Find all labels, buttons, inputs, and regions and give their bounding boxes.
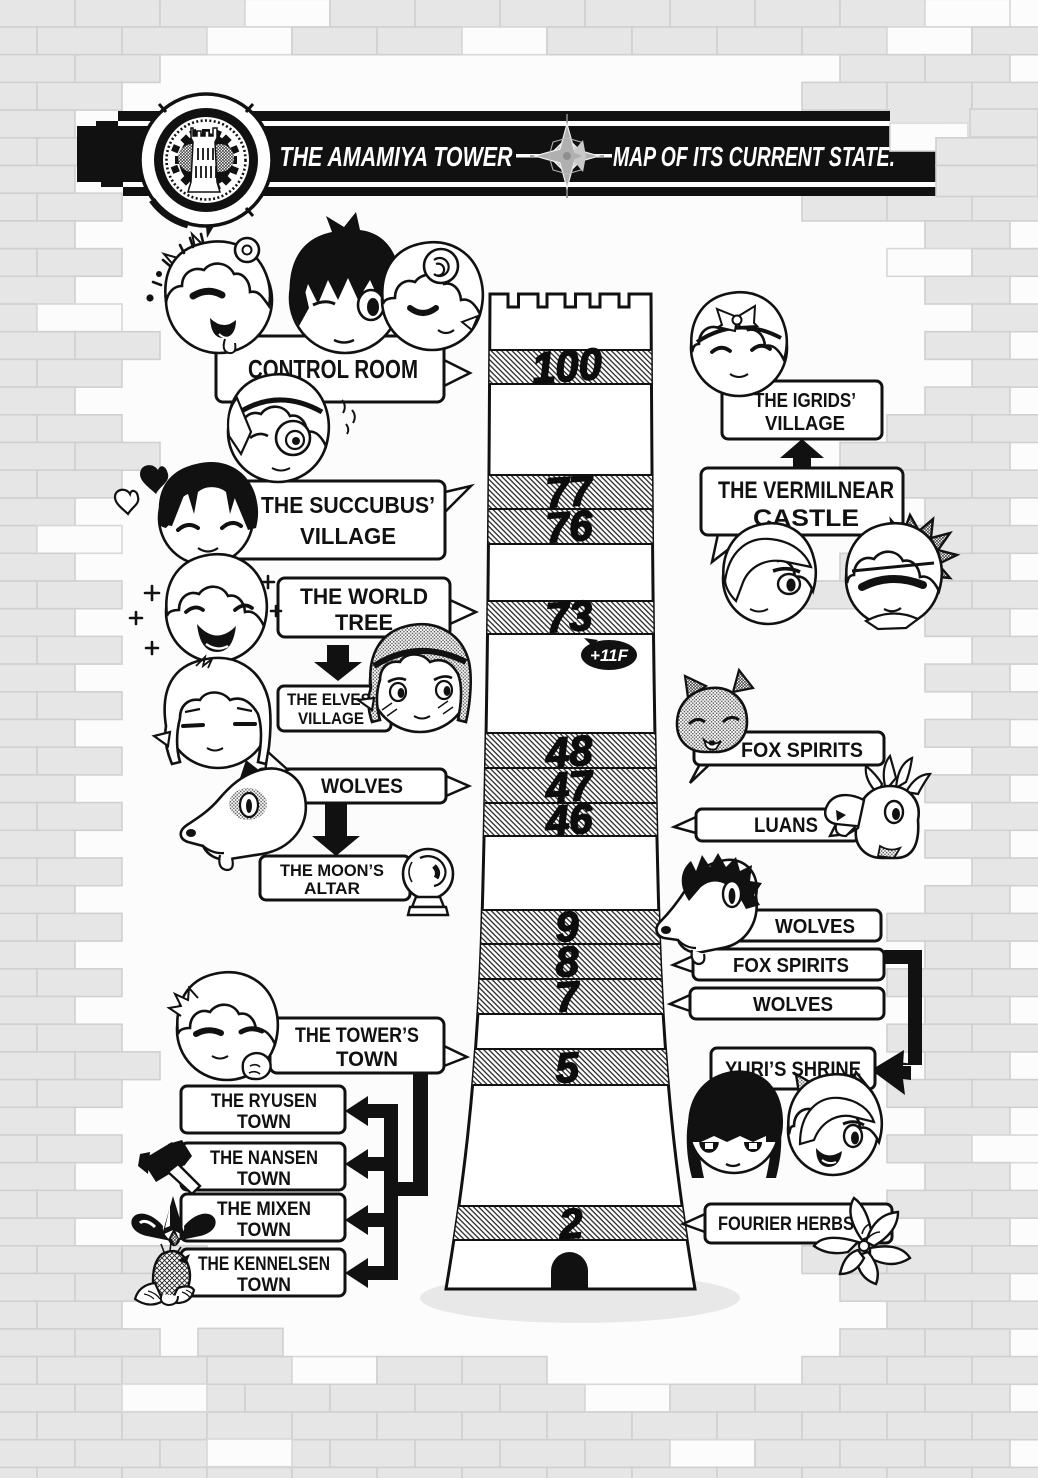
svg-text:5: 5 bbox=[554, 1043, 581, 1092]
svg-text:WOLVES: WOLVES bbox=[321, 775, 403, 798]
svg-text:TOWN: TOWN bbox=[237, 1112, 291, 1133]
svg-text:73: 73 bbox=[544, 591, 594, 641]
svg-text:FOX SPIRITS: FOX SPIRITS bbox=[733, 955, 849, 977]
svg-text:VILLAGE: VILLAGE bbox=[298, 710, 364, 728]
svg-text:THE AMAMIYA TOWER: THE AMAMIYA TOWER bbox=[280, 141, 514, 172]
svg-text:2: 2 bbox=[557, 1199, 585, 1248]
svg-text:THE VERMILNEAR: THE VERMILNEAR bbox=[718, 477, 894, 504]
svg-text:THE TOWER’S: THE TOWER’S bbox=[295, 1024, 419, 1047]
svg-text:TOWN: TOWN bbox=[237, 1220, 291, 1241]
svg-text:LUANS: LUANS bbox=[754, 814, 818, 837]
svg-text:WOLVES: WOLVES bbox=[753, 994, 833, 1016]
svg-text:46: 46 bbox=[543, 794, 595, 844]
svg-text:ALTAR: ALTAR bbox=[304, 879, 360, 898]
svg-text:FOX SPIRITS: FOX SPIRITS bbox=[741, 739, 863, 762]
svg-text:VILLAGE: VILLAGE bbox=[765, 413, 845, 435]
svg-text:76: 76 bbox=[544, 501, 595, 551]
svg-text:THE NANSEN: THE NANSEN bbox=[210, 1148, 318, 1169]
svg-text:THE SUCCUBUS’: THE SUCCUBUS’ bbox=[261, 492, 435, 518]
svg-text:THE WORLD: THE WORLD bbox=[300, 584, 428, 609]
svg-text:THE MOON’S: THE MOON’S bbox=[280, 861, 384, 880]
svg-text:TOWN: TOWN bbox=[336, 1048, 398, 1071]
svg-text:THE MIXEN: THE MIXEN bbox=[217, 1199, 311, 1220]
svg-text:WOLVES: WOLVES bbox=[775, 916, 855, 938]
svg-text:VILLAGE: VILLAGE bbox=[300, 523, 396, 549]
svg-text:THE RYUSEN: THE RYUSEN bbox=[211, 1091, 317, 1112]
svg-text:TOWN: TOWN bbox=[237, 1169, 291, 1190]
svg-text:100: 100 bbox=[530, 340, 604, 394]
svg-text:MAP OF ITS CURRENT STATE.: MAP OF ITS CURRENT STATE. bbox=[613, 141, 895, 172]
svg-text:THE IGRIDS’: THE IGRIDS’ bbox=[754, 390, 856, 412]
svg-text:TOWN: TOWN bbox=[237, 1275, 291, 1296]
svg-text:THE KENNELSEN: THE KENNELSEN bbox=[198, 1254, 330, 1275]
svg-text:+11F: +11F bbox=[590, 646, 629, 665]
svg-text:TREE: TREE bbox=[335, 610, 393, 635]
svg-text:FOURIER HERBS: FOURIER HERBS bbox=[718, 1213, 854, 1235]
